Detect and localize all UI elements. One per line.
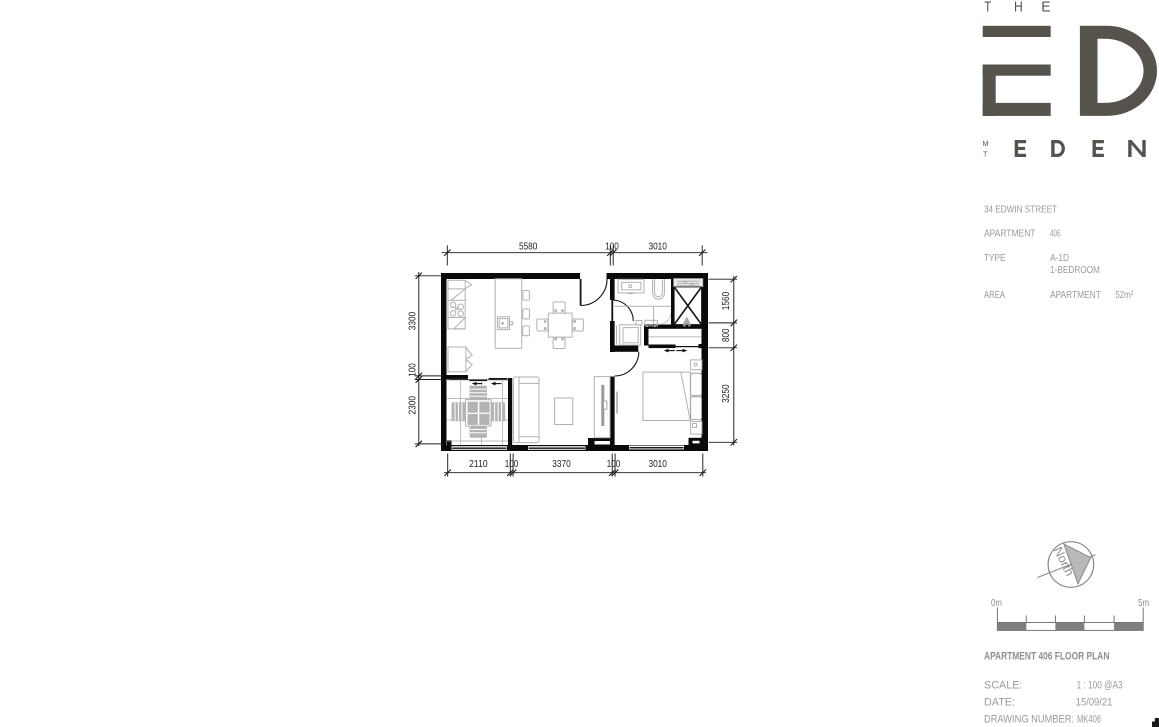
svg-text:DATE:: DATE: bbox=[984, 696, 1015, 708]
svg-text:2300: 2300 bbox=[408, 396, 419, 415]
svg-text:800: 800 bbox=[721, 328, 732, 342]
svg-text:52m²: 52m² bbox=[1115, 289, 1133, 301]
svg-text:AREA: AREA bbox=[984, 289, 1005, 301]
svg-text:T: T bbox=[984, 0, 991, 15]
svg-text:3010: 3010 bbox=[648, 459, 667, 470]
svg-text:1560: 1560 bbox=[721, 291, 732, 310]
svg-text:34 EDWIN STREET: 34 EDWIN STREET bbox=[984, 204, 1057, 216]
svg-text:M: M bbox=[983, 139, 989, 148]
svg-text:3300: 3300 bbox=[408, 311, 419, 330]
svg-text:1 : 100 @A3: 1 : 100 @A3 bbox=[1077, 680, 1123, 692]
svg-text:100: 100 bbox=[408, 363, 419, 377]
svg-text:3010: 3010 bbox=[648, 241, 667, 252]
svg-text:APARTMENT 406 FLOOR PLAN: APARTMENT 406 FLOOR PLAN bbox=[984, 651, 1109, 663]
svg-text:3250: 3250 bbox=[721, 384, 732, 403]
svg-text:1-BEDROOM: 1-BEDROOM bbox=[1050, 264, 1100, 276]
svg-text:SCALE:: SCALE: bbox=[984, 680, 1022, 692]
svg-text:APARTMENT: APARTMENT bbox=[984, 227, 1036, 239]
svg-text:15/09/21: 15/09/21 bbox=[1076, 696, 1113, 708]
svg-text:406: 406 bbox=[1050, 227, 1060, 239]
svg-text:100: 100 bbox=[607, 459, 621, 470]
svg-text:100: 100 bbox=[505, 459, 519, 470]
svg-text:DRAWING NUMBER:: DRAWING NUMBER: bbox=[984, 714, 1074, 726]
svg-text:MK406: MK406 bbox=[1077, 714, 1101, 726]
svg-text:0m: 0m bbox=[991, 598, 1002, 609]
svg-text:A-1D: A-1D bbox=[1050, 252, 1069, 264]
svg-text:2110: 2110 bbox=[469, 459, 488, 470]
svg-text:TYPE: TYPE bbox=[984, 252, 1006, 264]
svg-text:APARTMENT: APARTMENT bbox=[1050, 289, 1101, 301]
svg-text:T: T bbox=[983, 150, 988, 159]
svg-text:100: 100 bbox=[605, 241, 619, 252]
svg-text:E: E bbox=[1041, 0, 1051, 15]
svg-text:H: H bbox=[1014, 0, 1023, 15]
svg-text:5580: 5580 bbox=[519, 241, 538, 252]
svg-text:3370: 3370 bbox=[552, 459, 571, 470]
svg-text:5m: 5m bbox=[1138, 598, 1149, 609]
